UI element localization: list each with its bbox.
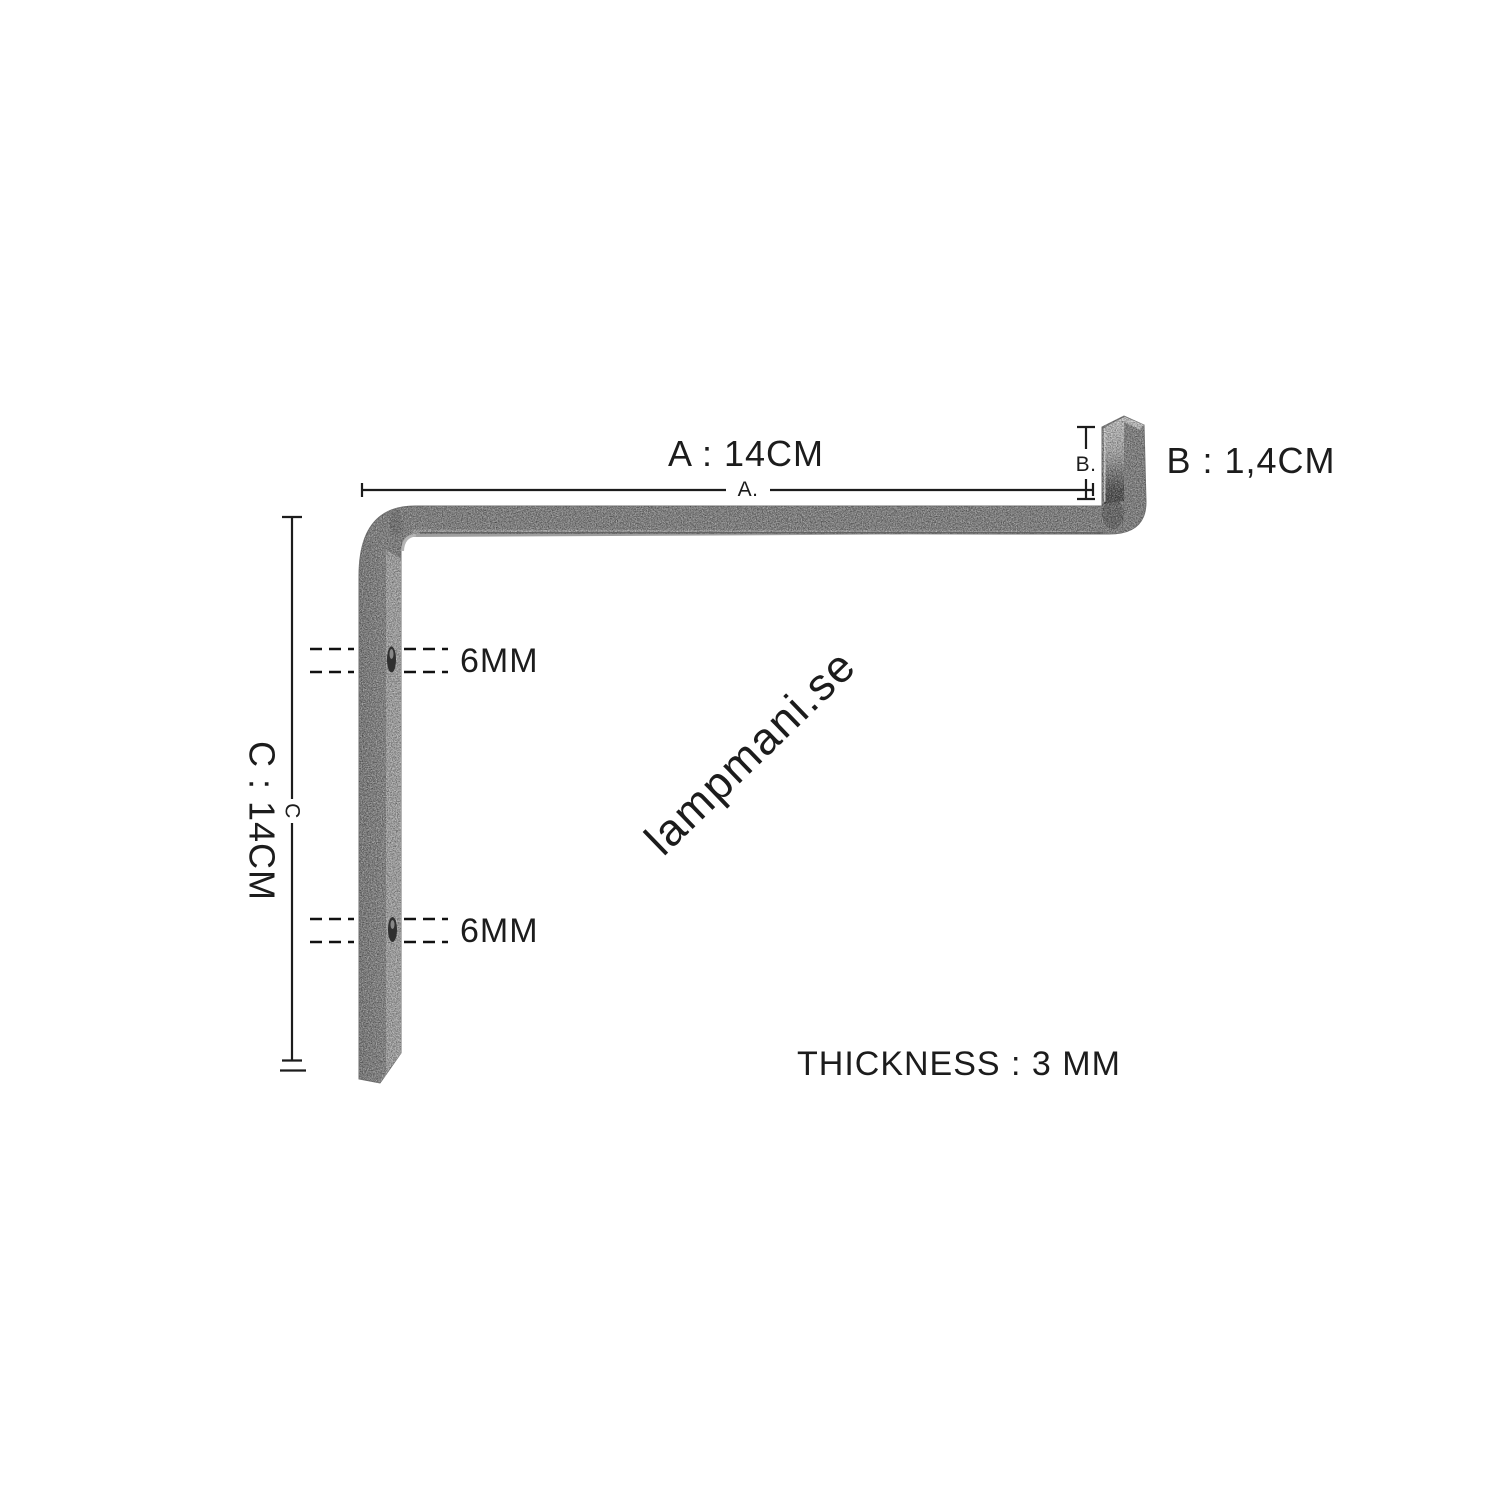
screw-hole-top: [387, 647, 396, 673]
hole-bottom-label: 6MM: [460, 912, 539, 950]
thickness-label: THICKNESS : 3 MM: [797, 1045, 1121, 1083]
dim-c-title: C : 14CM: [242, 741, 283, 901]
dim-b-line-label: B.: [1076, 453, 1097, 476]
bracket-dimension-drawing: lampmani.se: [0, 0, 1500, 1500]
dim-a-line-label: A.: [738, 478, 759, 501]
dim-a-title: A : 14CM: [668, 433, 824, 474]
drawing-canvas: lampmani.se: [0, 0, 1500, 1500]
hole-top-label: 6MM: [460, 642, 539, 680]
dim-c-line-label: C: [281, 803, 304, 819]
dim-b-title: B : 1,4CM: [1166, 440, 1335, 481]
screw-hole-bottom: [388, 917, 397, 942]
